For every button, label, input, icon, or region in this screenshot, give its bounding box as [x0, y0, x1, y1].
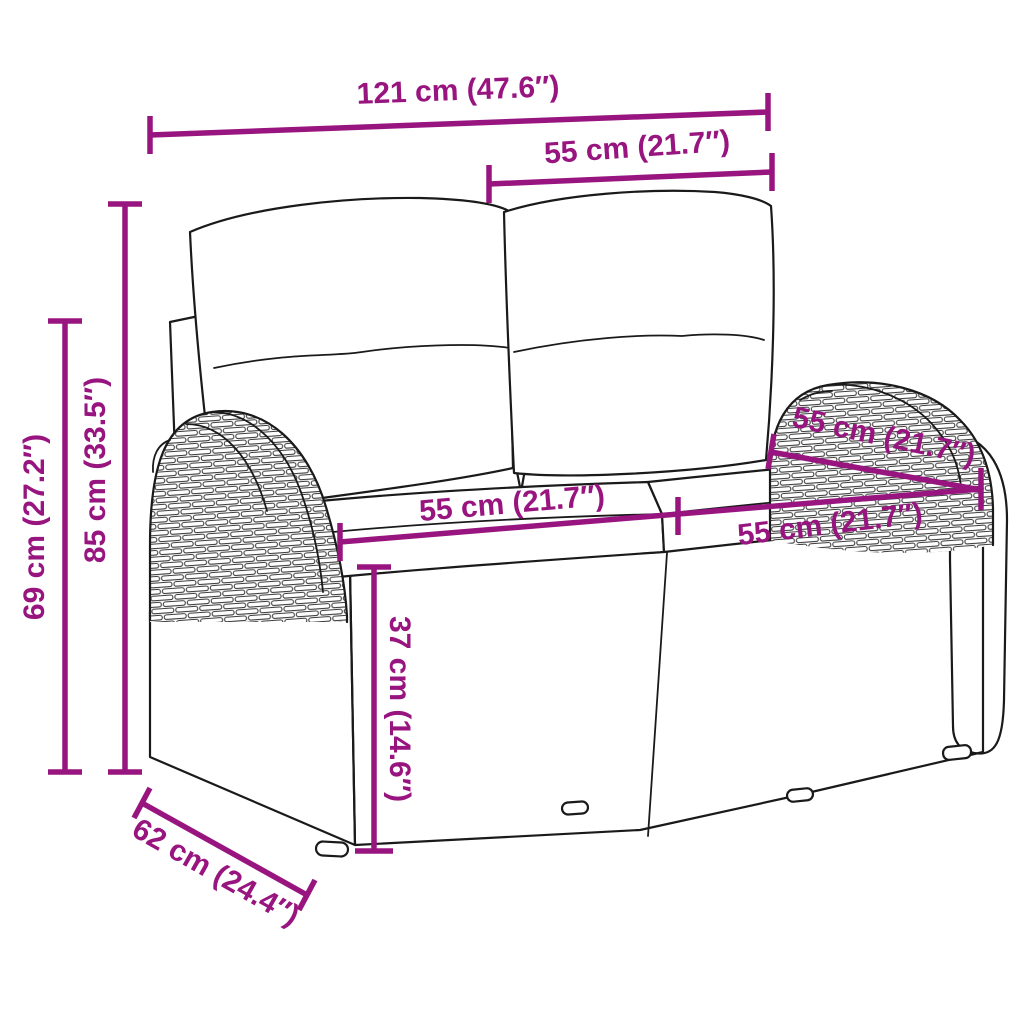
dim-label-depth-total: 62 cm (24.4″): [127, 812, 305, 932]
foot-front-left: [316, 841, 349, 857]
product-dimension-diagram: 121 cm (47.6″) 55 cm (21.7″) 85 cm (33.5…: [0, 0, 1024, 1024]
diagram-canvas: 121 cm (47.6″) 55 cm (21.7″) 85 cm (33.5…: [0, 0, 1024, 1024]
dim-label-height-secondary: 69 cm (27.2″): [18, 434, 51, 620]
right-back-cushion: [504, 191, 774, 476]
dim-line: [489, 172, 772, 184]
dim-depth-total: 62 cm (24.4″): [127, 788, 315, 933]
dim-label-height-total: 85 cm (33.5″): [79, 377, 112, 563]
dim-label-backrest-width: 55 cm (21.7″): [543, 125, 731, 171]
foot-right-corner: [942, 745, 971, 761]
foot-front-middle: [562, 801, 589, 815]
dim-seat-height: 37 cm (14.6″): [355, 567, 416, 851]
dim-label-overall-width: 121 cm (47.6″): [356, 70, 560, 111]
foot-front-right: [786, 788, 813, 803]
base-module-seam: [648, 538, 668, 836]
dim-label-seat-height: 37 cm (14.6″): [383, 616, 416, 802]
dim-height-total: 85 cm (33.5″): [79, 204, 142, 772]
dim-height-secondary: 69 cm (27.2″): [18, 321, 82, 772]
